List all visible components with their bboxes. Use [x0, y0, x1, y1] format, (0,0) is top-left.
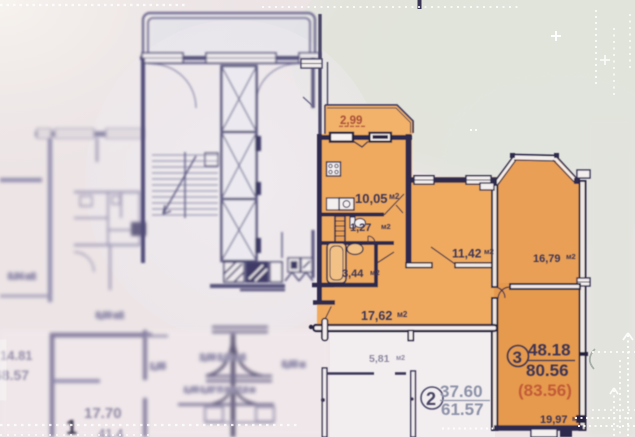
svg-text:м2: м2: [370, 268, 380, 277]
svg-text:11,42: 11,42: [452, 247, 482, 261]
svg-text:м2: м2: [397, 310, 408, 319]
svg-text:м2: м2: [389, 192, 400, 201]
svg-text:5,81: 5,81: [369, 353, 390, 365]
svg-text:3,85 м: 3,85 м: [282, 360, 305, 369]
svg-text:1,05 1,27 П 2,1 7,2 м: 1,05 1,27 П 2,1 7,2 м: [184, 385, 255, 394]
svg-text:1,27: 1,27: [350, 222, 371, 234]
svg-text:3,44: 3,44: [342, 268, 364, 280]
svg-text:16,79: 16,79: [533, 253, 561, 265]
svg-text:2,09 2,99 м2: 2,09 2,99 м2: [200, 353, 246, 362]
svg-text:м2: м2: [396, 355, 405, 362]
svg-text:1,95: 1,95: [150, 362, 166, 371]
svg-text:2: 2: [426, 389, 436, 409]
svg-text:м2: м2: [484, 247, 494, 256]
svg-text:3: 3: [513, 348, 522, 367]
svg-text:17.70: 17.70: [84, 405, 122, 422]
svg-text:37.60: 37.60: [440, 382, 483, 401]
svg-text:(83.56): (83.56): [518, 381, 572, 400]
svg-text:м2: м2: [381, 222, 391, 231]
svg-text:17,62: 17,62: [361, 309, 392, 323]
svg-text:3.84 м2: 3.84 м2: [8, 272, 36, 281]
svg-text:м2: м2: [566, 252, 576, 261]
svg-text:80.56: 80.56: [526, 361, 569, 380]
svg-text:48.18: 48.18: [528, 341, 571, 360]
svg-text:10,05: 10,05: [355, 191, 388, 206]
svg-text:19,97: 19,97: [540, 414, 568, 426]
svg-text:61.57: 61.57: [441, 400, 484, 419]
svg-text:9,00 м2: 9,00 м2: [96, 311, 124, 320]
svg-text:2,99: 2,99: [340, 115, 362, 127]
